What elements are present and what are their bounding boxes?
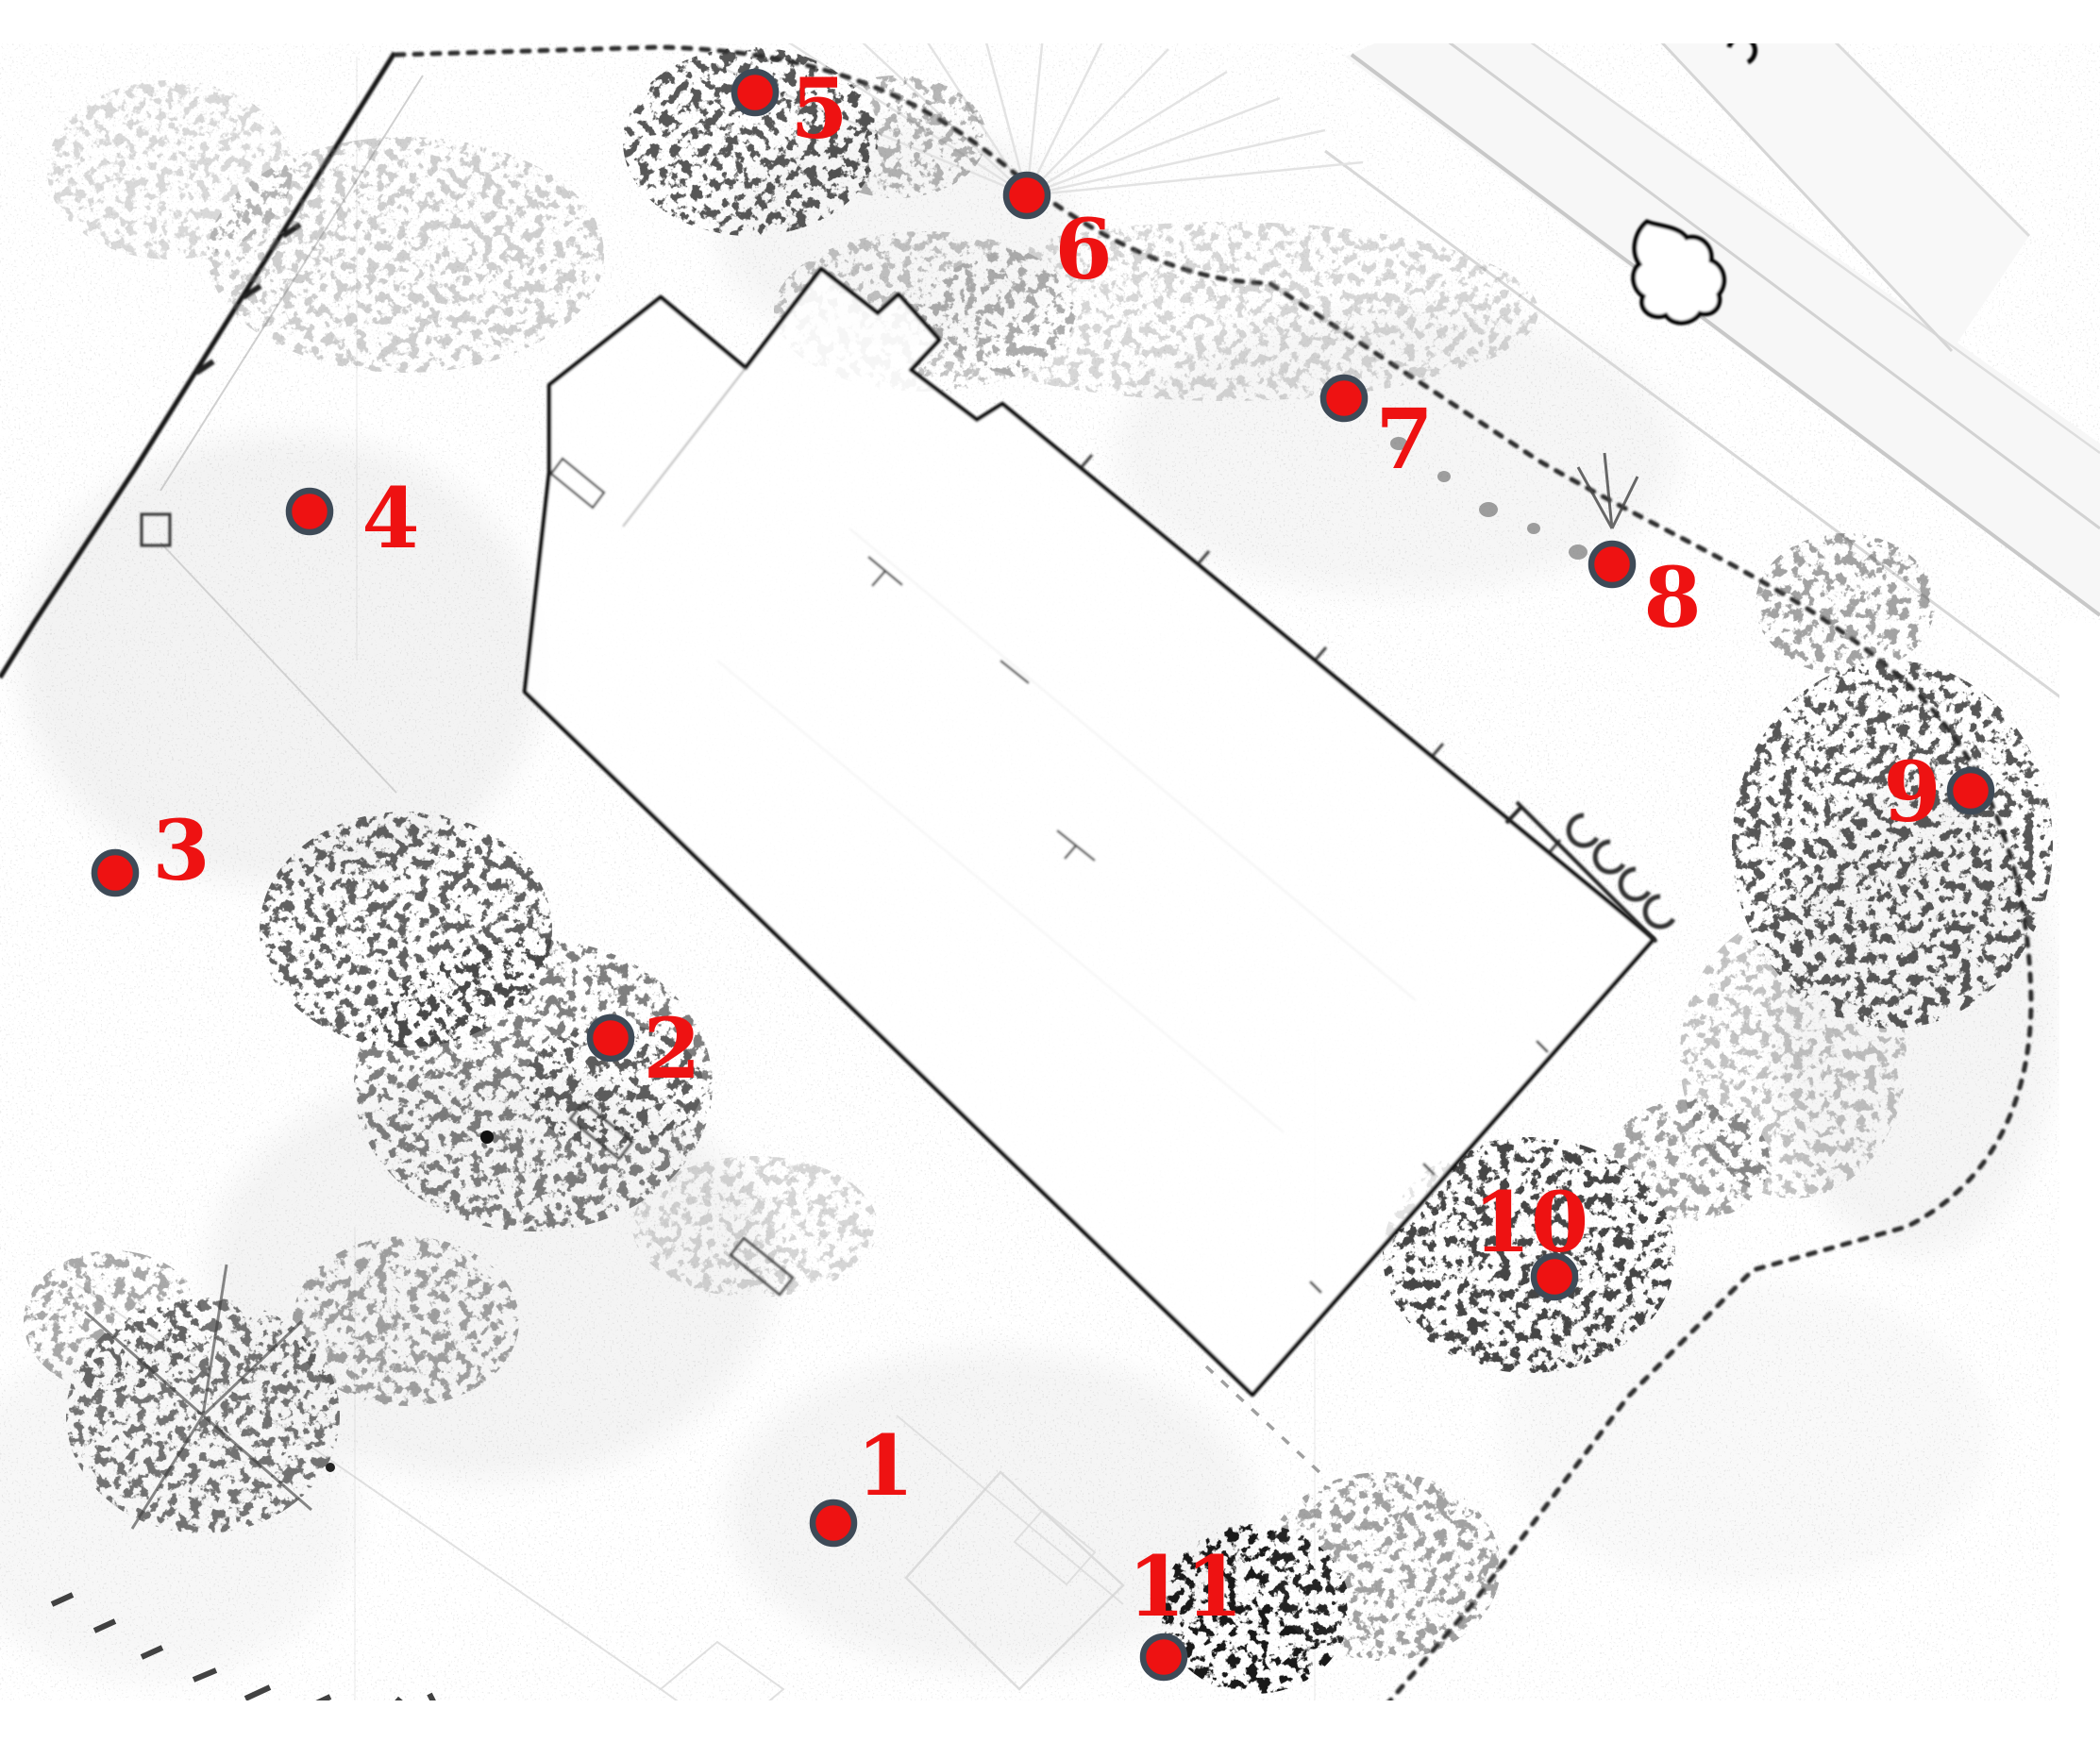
scan-station-label-1: 1 [856,1416,914,1515]
scan-station-label-4: 4 [361,469,419,567]
scan-station-label-7: 7 [1375,390,1433,488]
scan-station-label-10: 10 [1473,1173,1588,1271]
scan-station-label-11: 11 [1128,1537,1243,1635]
scan-station-label-6: 6 [1054,200,1112,298]
scan-station-marker-11[interactable] [1143,1636,1184,1678]
tree-trunk-dot [480,1131,494,1144]
scan-station-marker-5[interactable] [734,72,776,113]
top-margin [0,0,2100,43]
scan-station-marker-3[interactable] [94,852,136,894]
scan-station-marker-9[interactable] [1950,770,1991,812]
scan-station-label-9: 9 [1883,743,1940,841]
scan-station-label-3: 3 [152,801,210,899]
site-map-canvas: 1234567891011 [0,0,2100,1742]
scan-station-label-5: 5 [790,59,848,158]
right-margin [2059,623,2100,1704]
scan-station-marker-2[interactable] [590,1017,631,1059]
scan-station-marker-1[interactable] [813,1502,854,1544]
bottom-margin [0,1700,2100,1742]
scan-station-marker-6[interactable] [1006,175,1048,216]
scan-station-marker-4[interactable] [289,491,330,532]
scan-station-label-8: 8 [1643,548,1701,646]
scan-station-label-2: 2 [643,999,700,1097]
scan-station-marker-7[interactable] [1323,377,1365,419]
tree-trunk-dot [326,1463,335,1472]
lidar-site-map: 1234567891011 [0,0,2100,1742]
scan-station-marker-8[interactable] [1591,544,1633,585]
